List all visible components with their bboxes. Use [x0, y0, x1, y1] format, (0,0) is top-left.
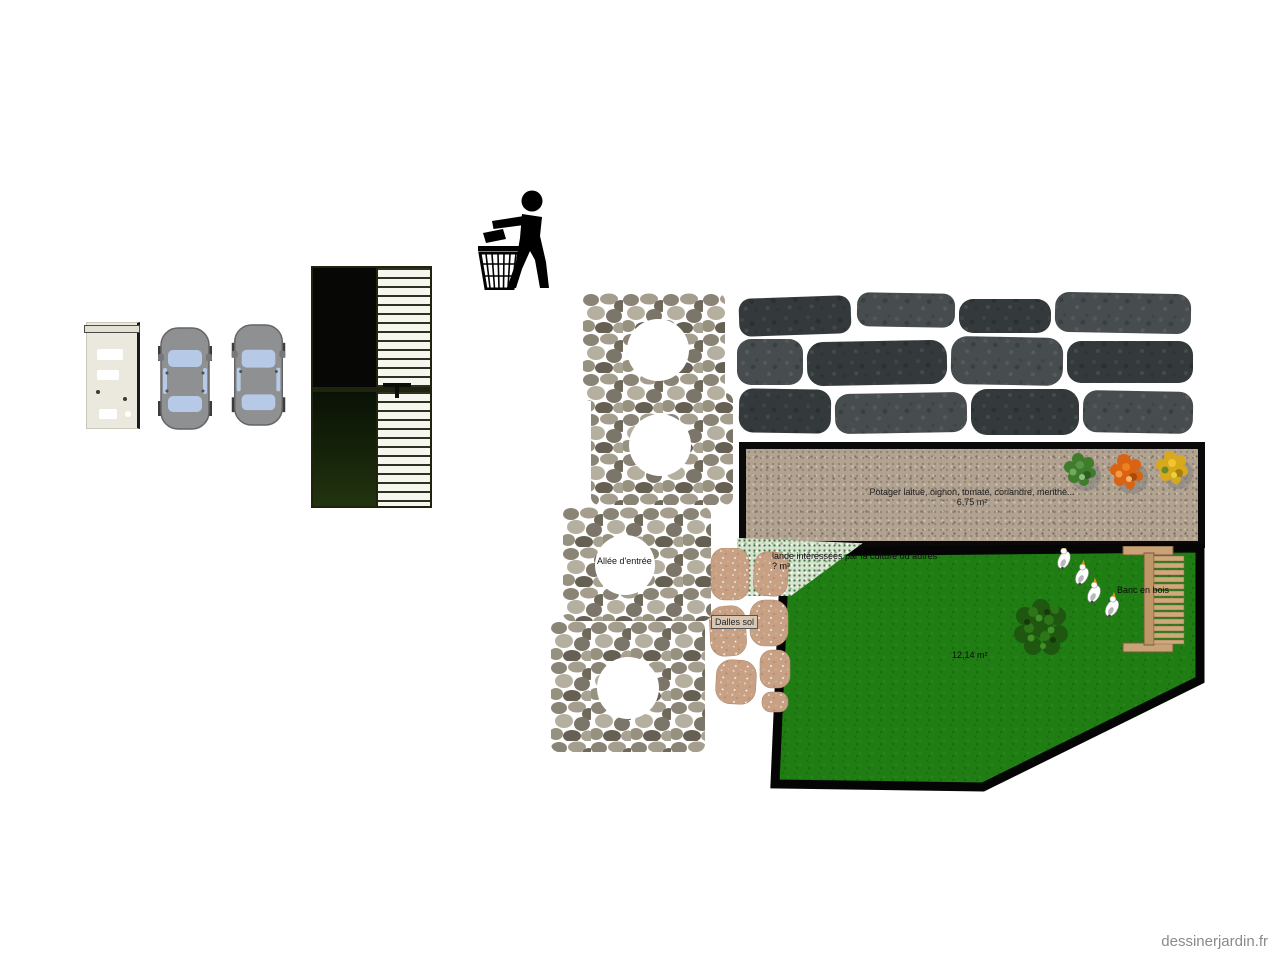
stone-paving-circle-icon[interactable] [551, 621, 705, 752]
pergola-top-module [313, 268, 430, 387]
pergola-roof-slats [376, 268, 430, 387]
litter-disposal-icon[interactable] [476, 190, 560, 290]
green-shrub-icon[interactable] [1058, 447, 1104, 493]
pergola-post-mark [395, 387, 399, 398]
wooden-bench-icon[interactable] [1122, 546, 1188, 653]
pergola-top-view-icon[interactable] [311, 266, 432, 508]
garden-plan-canvas: Potager laitue, oignon, tomate, coriandr… [0, 0, 1280, 960]
site-watermark: dessinerjardin.fr [1161, 933, 1268, 950]
pergola-roof-slats [376, 392, 430, 506]
floor-slabs-label: Dalles sol [711, 615, 758, 629]
yellow-shrub-icon[interactable] [1150, 445, 1196, 491]
pergola-roof-solid [313, 392, 376, 506]
pergola-roof-solid [313, 268, 376, 387]
appliance-slot [97, 349, 123, 360]
stone-paving-circle-icon[interactable] [583, 293, 733, 505]
appliance-slot [97, 370, 119, 380]
flagstone-path-icon[interactable] [706, 548, 794, 714]
pergola-bottom-module [313, 387, 430, 506]
stone-wall-icon[interactable] [737, 291, 1195, 439]
potager-area: 6,75 m² [746, 497, 1198, 507]
appliance-knob [123, 397, 127, 401]
culture-zone-area: ? m² [772, 561, 790, 571]
bench-label: Banc en bois [1117, 585, 1169, 595]
lawn-area-label: 12,14 m² [952, 650, 988, 660]
car-top-view-icon[interactable] [158, 325, 212, 432]
appliance-top-view-icon[interactable] [86, 322, 140, 429]
entrance-path-label: Allée d'entrée [597, 556, 652, 566]
appliance-slot [99, 409, 117, 419]
appliance-knob [96, 390, 100, 394]
culture-zone-label: lande intéressées par la culture ou autr… [772, 551, 937, 561]
orange-shrub-icon[interactable] [1103, 448, 1151, 496]
appliance-handle [84, 325, 140, 333]
car-top-view-icon[interactable] [231, 322, 286, 428]
appliance-knob [125, 411, 131, 417]
